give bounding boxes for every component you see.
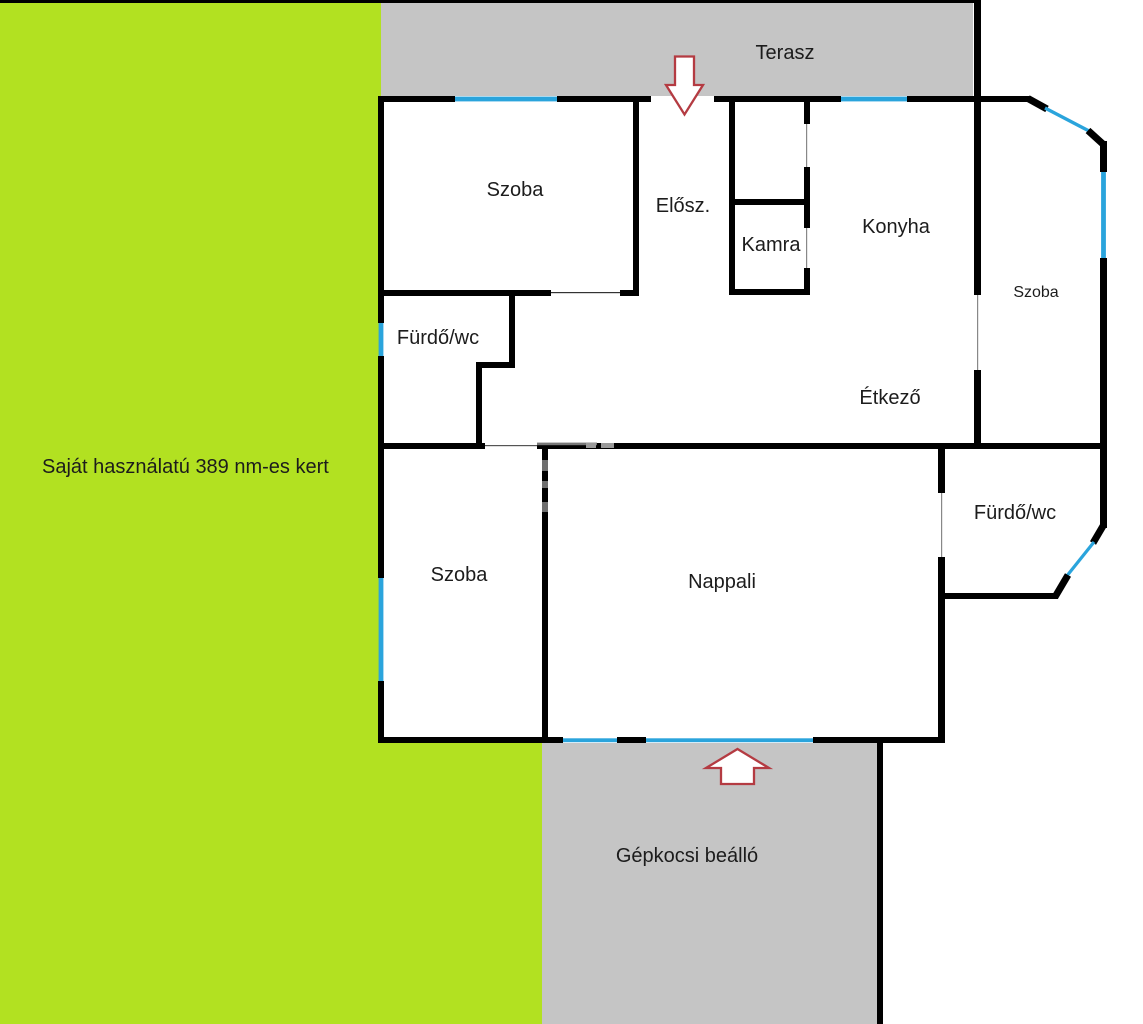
svg-text:Nappali: Nappali	[688, 571, 756, 593]
svg-text:Elősz.: Elősz.	[656, 195, 710, 217]
svg-text:Fürdő/wc: Fürdő/wc	[974, 502, 1056, 524]
svg-text:Szoba: Szoba	[431, 564, 489, 586]
svg-text:Fürdő/wc: Fürdő/wc	[397, 327, 479, 349]
svg-text:Terasz: Terasz	[756, 42, 815, 64]
svg-text:Szoba: Szoba	[487, 179, 545, 201]
svg-text:Gépkocsi beálló: Gépkocsi beálló	[616, 845, 758, 867]
svg-text:Konyha: Konyha	[862, 216, 931, 238]
svg-text:Saját használatú 389 nm-es ker: Saját használatú 389 nm-es kert	[42, 456, 329, 478]
svg-text:Szoba: Szoba	[1013, 284, 1058, 301]
svg-text:Kamra: Kamra	[742, 234, 802, 256]
svg-text:Étkező: Étkező	[859, 386, 920, 409]
